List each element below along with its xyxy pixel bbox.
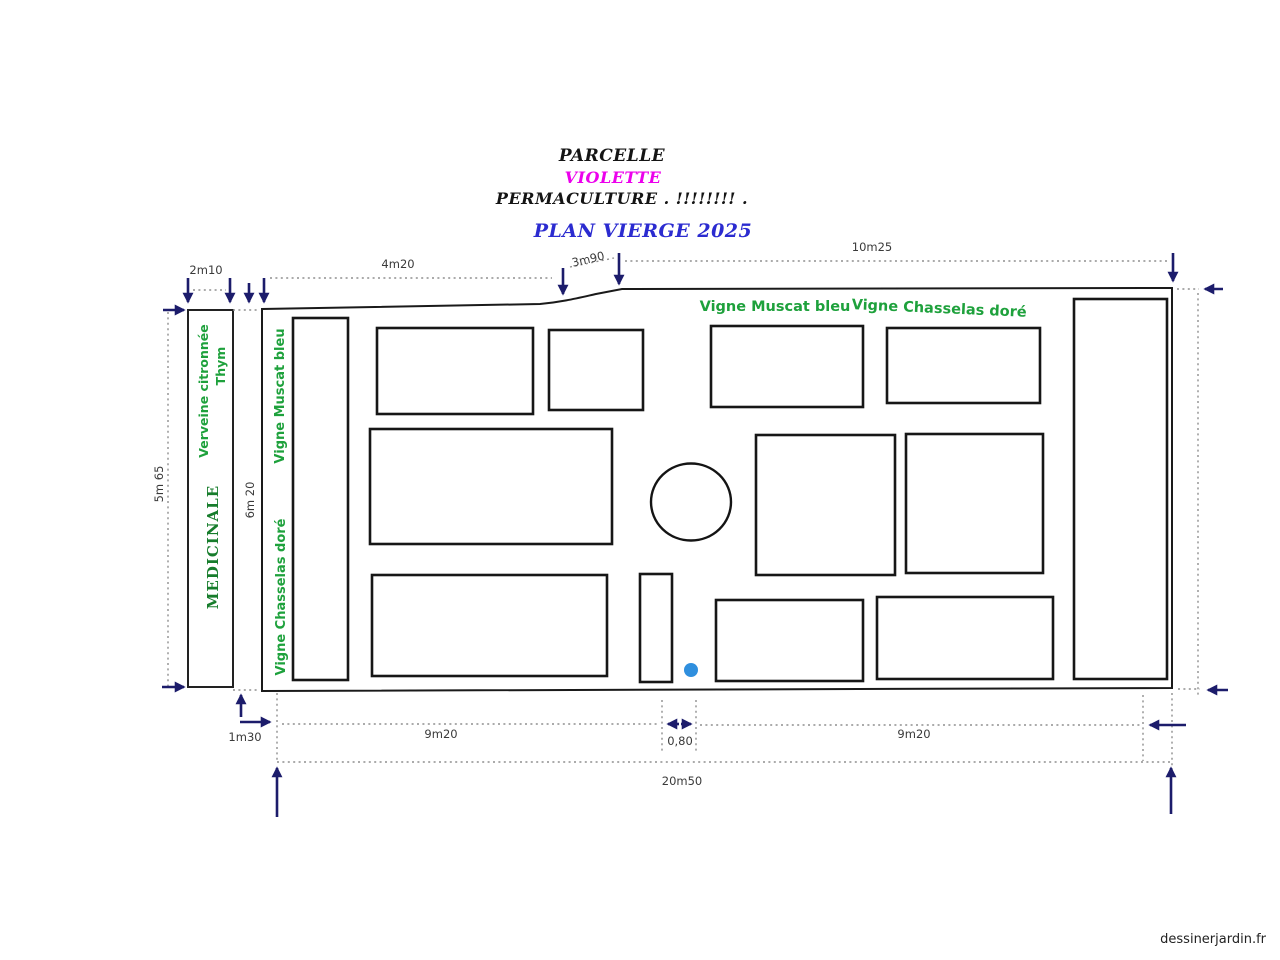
watermark-dessinerjardin: dessinerjardin.fr	[1160, 932, 1266, 947]
bed-row2-c	[906, 434, 1043, 573]
plan-drawing: 2m10 4m20 3m90 10m25 5m 65 6m 20 1m30 9m…	[0, 0, 1280, 960]
label-medicinale: MEDICINALE	[204, 485, 222, 609]
bed-row1-d	[887, 328, 1040, 403]
dim-0-80: 0,80	[667, 734, 693, 748]
bed-row2-b	[756, 435, 895, 575]
label-vigne-chasselas-vertical: Vigne Chasselas doré	[274, 518, 289, 675]
dim-3m90: 3m90	[570, 249, 605, 270]
bed-row1-a	[377, 328, 533, 414]
bed-tall-right	[1074, 299, 1167, 679]
bed-narrow-center	[640, 574, 672, 682]
bed-row1-b	[549, 330, 643, 410]
dim-9m20-right: 9m20	[897, 727, 930, 741]
dim-1m30: 1m30	[228, 730, 261, 744]
water-point-dot	[684, 663, 698, 677]
bed-row3-a	[372, 575, 607, 676]
label-vigne-muscat-vertical: Vigne Muscat bleu	[273, 328, 288, 463]
dim-9m20-left: 9m20	[424, 727, 457, 741]
dim-4m20: 4m20	[381, 257, 414, 271]
label-vigne-muscat-horizontal: Vigne Muscat bleu	[700, 299, 851, 315]
dim-6m20: 6m 20	[243, 482, 257, 519]
garden-beds	[293, 299, 1167, 682]
dim-20m50: 20m50	[662, 774, 702, 788]
bed-row3-b	[716, 600, 863, 681]
dim-2m10: 2m10	[189, 263, 222, 277]
label-thym: Thym	[213, 347, 228, 386]
dim-5m65: 5m 65	[152, 466, 166, 503]
circle-bed	[651, 464, 731, 541]
bed-row2-a	[370, 429, 612, 544]
garden-plan-page: PARCELLE VIOLETTE PERMACULTURE . !!!!!!!…	[0, 0, 1280, 960]
bed-row1-c	[711, 326, 863, 407]
bed-row3-c	[877, 597, 1053, 679]
label-verveine: Verveine citronnée	[196, 324, 211, 457]
bed-tall-left	[293, 318, 348, 680]
dim-10m25: 10m25	[852, 240, 892, 254]
